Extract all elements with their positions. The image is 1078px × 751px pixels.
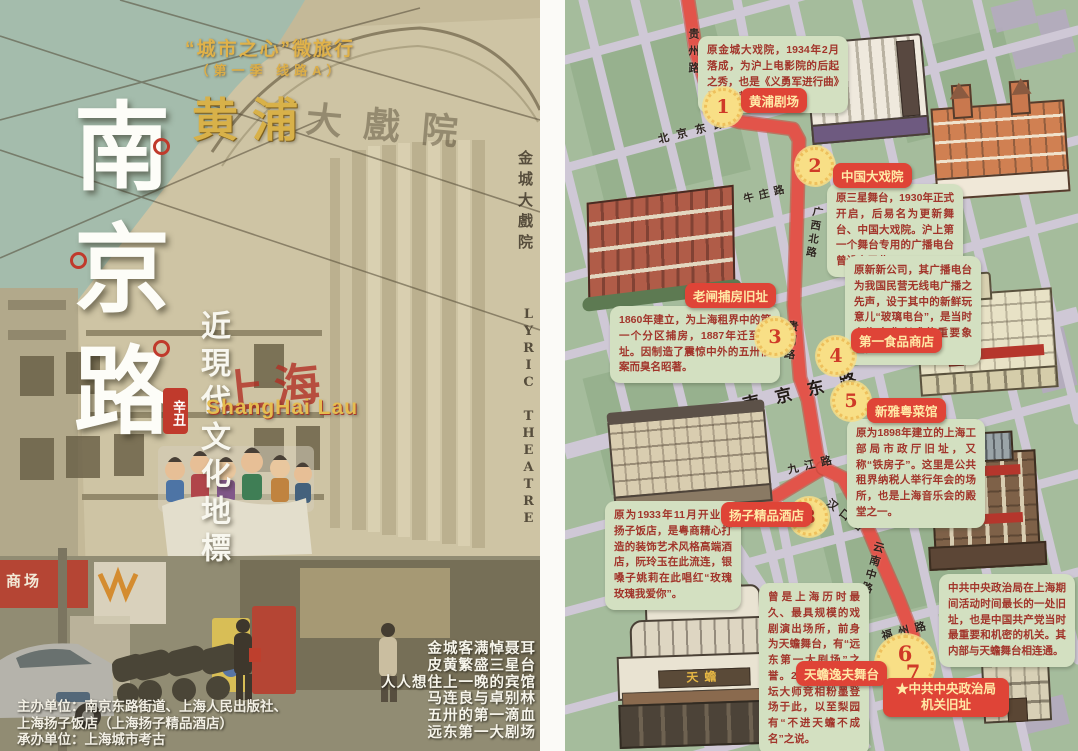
label-louza-station: 老闸捕房旧址 — [685, 283, 776, 308]
credit-line: 承办单位：上海城市考古 — [17, 732, 287, 749]
seal-xinchou: 辛丑 — [163, 388, 188, 434]
credit-line: 上海扬子饭店（上海扬子精品酒店） — [17, 716, 287, 733]
label-tianchan: 天蟾逸夫舞台 — [796, 661, 887, 686]
label-huangpu-theatre: 黄浦剧场 — [741, 88, 807, 113]
title-ring-3 — [153, 340, 170, 357]
label-first-foodhall: 第一食品商店 — [851, 328, 942, 353]
street-shop-sign: 商场 — [6, 570, 86, 591]
label-yangtze-hotel: 扬子精品酒店 — [721, 502, 812, 527]
building-yangtze-hotel — [607, 409, 772, 514]
label-china-theatre: 中国大戏院 — [833, 163, 912, 188]
walking-route-map: 贵州路 北京东路 牛庄路 广西北路 贵州路 南京东路 九江路 汉口路 云南中路 … — [565, 0, 1078, 751]
huangpu-marquee-sign: 黄浦 — [192, 84, 312, 150]
tianchan-sign: 天蟾 — [658, 668, 750, 689]
credits-block: 主办单位：南京东路街道、上海人民出版社、 上海扬子饭店（上海扬子精品酒店） 承办… — [17, 699, 287, 749]
poem-line: 人人想住上一晚的宾馆 — [230, 675, 536, 692]
stop-marker-1: 1 — [704, 88, 742, 126]
desc-louza-station: 1860年建立，为上海租界中的第一个分区捕房，1887年迁至今址。因制造了震惊中… — [610, 306, 780, 383]
stop-marker-2: 2 — [796, 147, 834, 185]
desc-politburo: 中共中央政治局在上海期间活动时间最长的一处旧址，也是中国共产党当时最重要和机密的… — [939, 574, 1075, 667]
label-xinya: 新雅粤菜馆 — [867, 398, 946, 423]
subtitle-vertical: 近現代文化地標 — [190, 310, 234, 590]
title-ring-2 — [70, 252, 87, 269]
jincheng-vertical-sign: 金城大戲院 — [502, 122, 536, 282]
shanghai-logo-latin: ShangHai Lau — [206, 396, 358, 420]
credit-line: 主办单位：南京东路街道、上海人民出版社、 — [17, 699, 287, 716]
title-ring-1 — [153, 138, 170, 155]
desc-xinya: 原为1898年建立的上海工部局市政厅旧址，又称“铁房子”。这里是公共租界纳税人举… — [847, 419, 985, 528]
poem-line: 金城客满悼聂耳 — [230, 641, 536, 658]
label-politburo: ★中共中央政治局 机关旧址 — [883, 678, 1009, 717]
stop-marker-3: 3 — [756, 318, 794, 356]
series-subtitle: （第一季 线路A） — [0, 60, 540, 79]
lyric-theatre-sign: LYRIC THEATRE — [502, 282, 536, 552]
series-title: “城市之心”微旅行 — [0, 34, 540, 61]
title-char-jing: 京 — [62, 222, 182, 318]
screenshot: “城市之心”微旅行 （第一季 线路A） 南 京 路 辛丑 近現代文化地標 黄浦 … — [0, 0, 1078, 751]
stop-marker-5: 5 — [832, 382, 870, 420]
poem-line: 皮黄繁盛三星台 — [230, 658, 536, 675]
stop-marker-4: 4 — [817, 337, 855, 375]
nanjing-road-poster: “城市之心”微旅行 （第一季 线路A） 南 京 路 辛丑 近現代文化地標 黄浦 … — [0, 0, 540, 751]
